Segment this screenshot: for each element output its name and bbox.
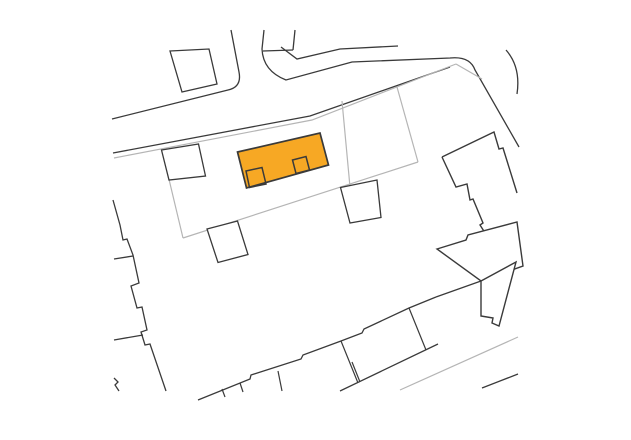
terrace-division-2 (240, 383, 243, 392)
parcel-divider (342, 101, 350, 187)
road-south-edge (113, 67, 450, 153)
terrace-row-nw-edge (198, 297, 436, 400)
outbuilding-left (162, 144, 206, 180)
parcel-right-boundary (397, 87, 418, 162)
site-plan-map (0, 0, 631, 440)
parcel-corner-cut (456, 64, 482, 79)
map-canvas (0, 0, 631, 440)
building-north-wall-a (263, 50, 293, 51)
east-complex-upper-outline-right (442, 132, 517, 193)
outbuilding-right (341, 180, 382, 223)
east-complex-long-wall (436, 281, 481, 297)
east-complex-upper-outline-left (442, 157, 487, 236)
terrace-division-3 (278, 371, 282, 391)
road-east-branch-edge (506, 50, 518, 94)
road-north-edge-and-side-street-left (112, 30, 240, 119)
terrace-division-4 (341, 341, 358, 383)
building-west-stub-upper (114, 256, 133, 259)
building-north-wall-b (293, 30, 295, 50)
building-west-stub-lower (114, 335, 143, 340)
highlighted-building (238, 133, 329, 188)
building-west-stepped-edge (113, 200, 166, 391)
building-north-west (170, 49, 217, 92)
terrace-division-6 (409, 308, 426, 350)
building-west-corner-mark (114, 378, 119, 391)
outbuilding-bottom (207, 221, 248, 263)
parcel-line-bottom-right (400, 337, 518, 390)
boundary-line-bottom-right (482, 374, 518, 388)
building-north-front-line (281, 46, 398, 59)
